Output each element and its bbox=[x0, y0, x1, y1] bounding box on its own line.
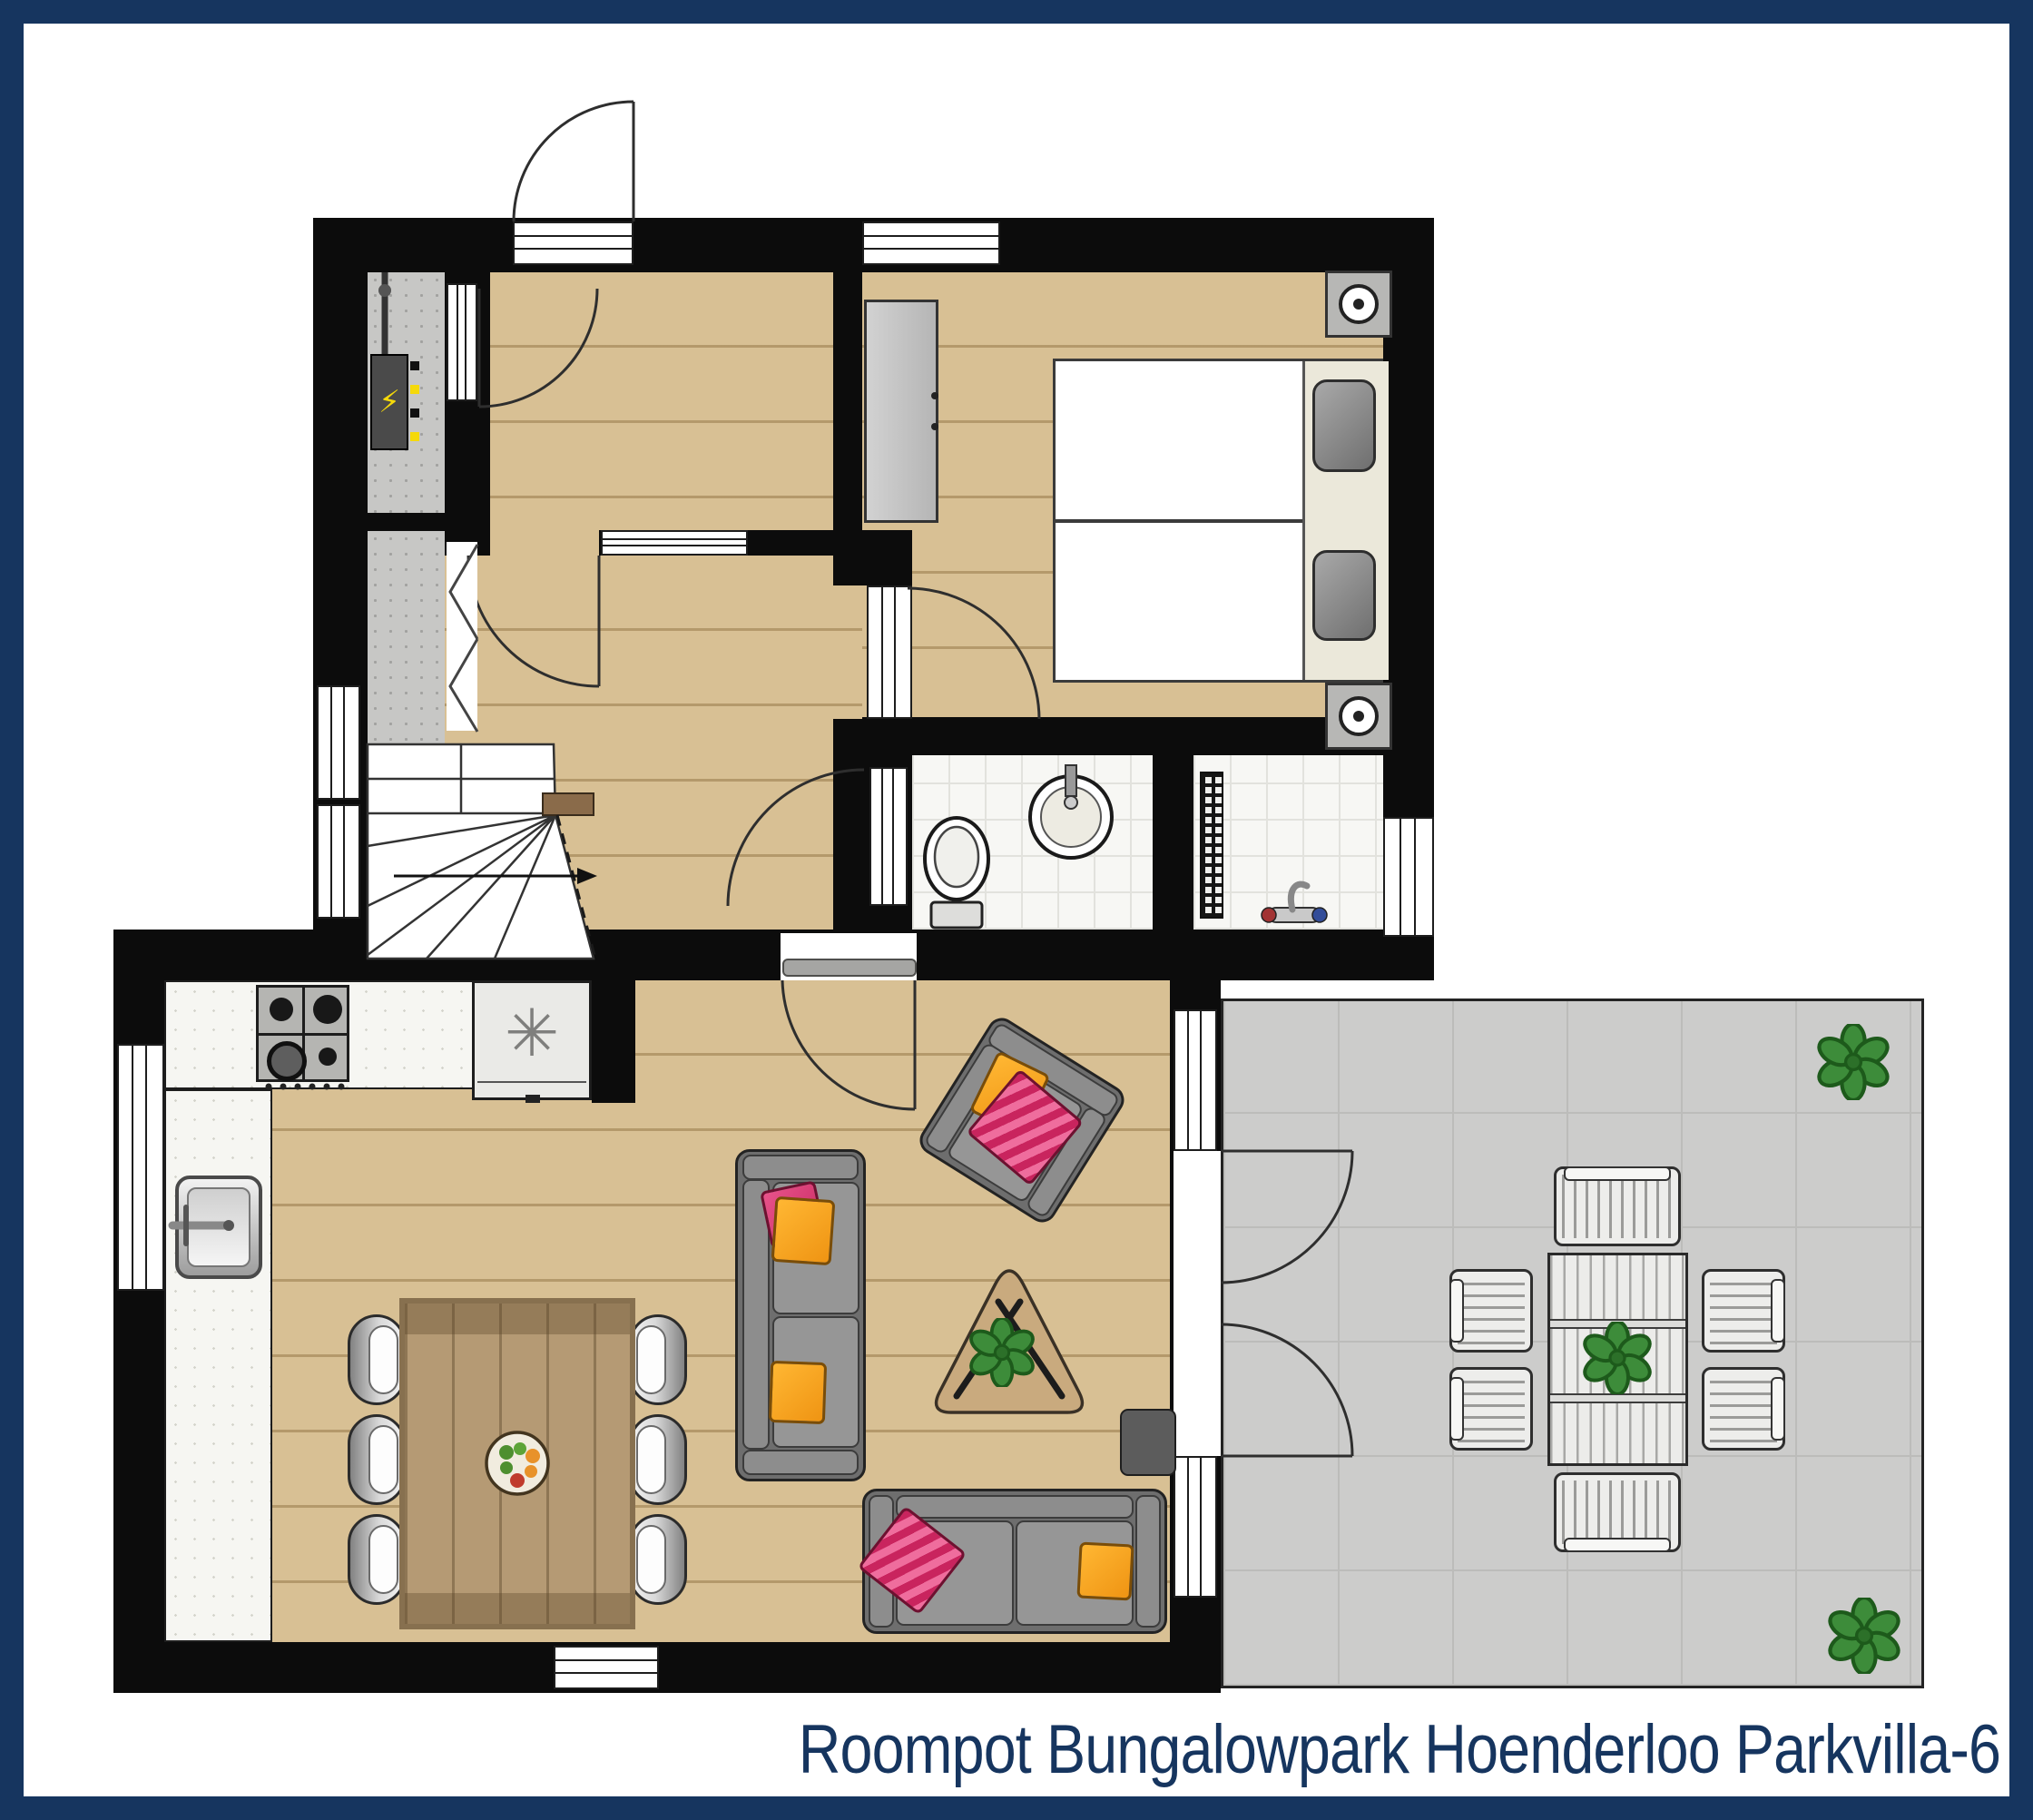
freezer-handle bbox=[525, 1095, 540, 1103]
side-table bbox=[1120, 1409, 1176, 1476]
living-window-south bbox=[554, 1646, 659, 1689]
dining-chair-3 bbox=[348, 1514, 406, 1605]
pillow-orange-2 bbox=[769, 1361, 827, 1424]
terrace-chair-right-1 bbox=[1702, 1269, 1785, 1353]
terrace-chair-right-2 bbox=[1702, 1367, 1785, 1451]
hall-window-1 bbox=[317, 685, 360, 800]
burner-2 bbox=[313, 995, 342, 1024]
wall-bathroom-shower bbox=[1153, 755, 1193, 930]
freezer-line bbox=[477, 1081, 586, 1083]
hall-passage-floor bbox=[490, 530, 599, 556]
table-end-2 bbox=[405, 1593, 630, 1624]
freezer-icon: ✳ bbox=[505, 1000, 559, 1066]
terrace-chair-left-1 bbox=[1449, 1269, 1533, 1353]
sofa-large-armrest-1 bbox=[742, 1155, 859, 1180]
living-window-west bbox=[117, 1044, 164, 1291]
burner-4 bbox=[319, 1048, 337, 1066]
technical-closet-door bbox=[447, 283, 477, 401]
entrance-hall-floor bbox=[490, 272, 833, 530]
dining-chair-6 bbox=[629, 1514, 687, 1605]
dining-chair-4 bbox=[629, 1314, 687, 1405]
bed-pillow-2 bbox=[1312, 550, 1376, 641]
wall-bedroom-left-lower bbox=[833, 530, 912, 585]
bed-pillow-1 bbox=[1312, 379, 1376, 472]
storage-closet-floor bbox=[368, 531, 445, 744]
terrace-table-divider-2 bbox=[1550, 1393, 1685, 1403]
pillow-orange-4 bbox=[1076, 1541, 1134, 1600]
terrace-chair-left-2 bbox=[1449, 1367, 1533, 1451]
terrace-door-opening bbox=[1174, 1151, 1221, 1456]
hall-window-2 bbox=[317, 804, 360, 919]
dining-table bbox=[399, 1298, 635, 1629]
entrance-door-threshold bbox=[513, 221, 633, 265]
bedroom-window bbox=[862, 221, 1000, 265]
hallway-floor-west bbox=[368, 744, 445, 930]
bathroom-door bbox=[869, 767, 908, 906]
kitchen-sink bbox=[175, 1176, 262, 1279]
bathroom-floor bbox=[912, 755, 1153, 930]
burner-3 bbox=[267, 1041, 307, 1081]
dining-chair-1 bbox=[348, 1314, 406, 1405]
terrace-chair-bottom bbox=[1554, 1472, 1681, 1552]
wardrobe bbox=[864, 300, 938, 523]
nightstand-2 bbox=[1325, 683, 1392, 750]
gas-hob bbox=[256, 985, 349, 1082]
living-window-east-1 bbox=[1174, 1009, 1217, 1151]
kitchen-counter-left bbox=[164, 1089, 272, 1642]
living-window-east-2 bbox=[1174, 1456, 1217, 1598]
electrical-panel: ⚡ bbox=[370, 354, 408, 450]
plan-title: Roompot Bungalowpark Hoenderloo Parkvill… bbox=[799, 1710, 2000, 1789]
dining-chair-5 bbox=[629, 1414, 687, 1505]
doormat bbox=[782, 959, 917, 977]
radiator bbox=[1200, 772, 1223, 919]
freezer: ✳ bbox=[472, 980, 592, 1100]
sofa-small-armrest-2 bbox=[1135, 1495, 1161, 1628]
floor-plan: ⚡ ✳ bbox=[0, 0, 2033, 1820]
shower-window bbox=[1383, 817, 1434, 937]
hallway-floor bbox=[445, 556, 862, 930]
terrace-table bbox=[1547, 1253, 1688, 1466]
storage-closet-door-opening bbox=[447, 542, 477, 731]
terrace-chair-top bbox=[1554, 1166, 1681, 1246]
sink-basin bbox=[187, 1187, 250, 1267]
nightstand-1 bbox=[1325, 271, 1392, 338]
entrance-door-swing bbox=[514, 102, 633, 221]
table-end-1 bbox=[405, 1304, 630, 1334]
burner-1 bbox=[270, 998, 293, 1021]
terrace-table-divider-1 bbox=[1550, 1319, 1685, 1329]
wall-bedroom-left bbox=[833, 272, 862, 530]
sofa-large-armrest-2 bbox=[742, 1450, 859, 1475]
wall-kitchen-stub bbox=[592, 980, 635, 1103]
dining-chair-2 bbox=[348, 1414, 406, 1505]
sofa-small-backrest bbox=[896, 1495, 1134, 1519]
pillow-orange-1 bbox=[771, 1196, 836, 1265]
hob-grate-h bbox=[259, 1033, 347, 1036]
power-icon: ⚡ bbox=[378, 384, 400, 420]
interior-window-hall bbox=[601, 530, 748, 556]
bedroom-door bbox=[867, 585, 912, 719]
